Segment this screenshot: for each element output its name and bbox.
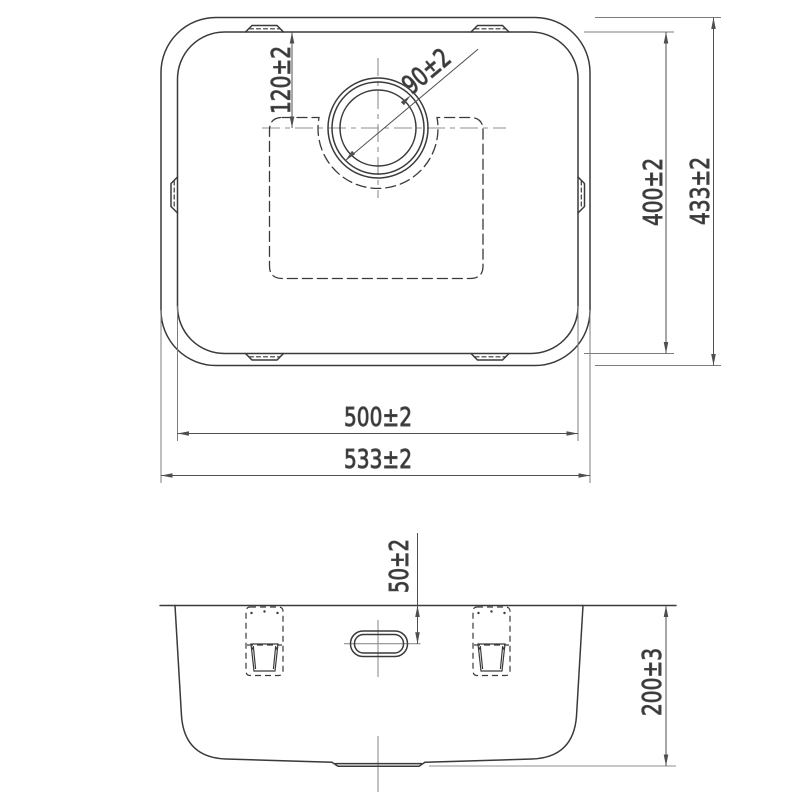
dim-label-bowl-length: 400±2	[639, 158, 669, 226]
dim-label-overall-width: 533±2	[344, 445, 412, 475]
sink-technical-drawing: 120±2 90±2 400±2 433±2	[0, 0, 800, 800]
dimension-drain-offset: 120±2	[267, 32, 297, 128]
dim-label-bowl-width: 500±2	[344, 403, 412, 433]
dimension-bowl-width: 500±2	[178, 306, 579, 441]
dim-label-overflow-offset: 50±2	[385, 539, 415, 593]
dimension-drain-diameter: 90±2	[346, 43, 479, 160]
top-view	[161, 18, 590, 366]
mounting-bracket-right	[473, 607, 510, 676]
mounting-bracket-left	[246, 607, 283, 676]
dim-label-depth: 200±3	[638, 648, 668, 716]
top-view-dimensions: 120±2 90±2 400±2 433±2	[161, 18, 721, 484]
drawing-canvas: 120±2 90±2 400±2 433±2	[0, 0, 800, 800]
dimension-overflow-offset: 50±2	[385, 533, 420, 644]
dimension-overall-width: 533±2	[161, 310, 590, 483]
side-view-dimensions: 50±2 200±3	[385, 533, 668, 766]
sink-outer-rim	[161, 18, 590, 366]
dim-label-drain-offset: 120±2	[267, 46, 297, 114]
side-view-right-wall	[425, 606, 583, 763]
bowl-bottom-outline	[270, 118, 484, 279]
dim-label-overall-length: 433±2	[686, 157, 716, 225]
dimension-depth: 200±3	[638, 606, 668, 767]
dimension-bowl-length: 400±2	[584, 32, 674, 354]
side-view-left-wall	[175, 606, 332, 763]
